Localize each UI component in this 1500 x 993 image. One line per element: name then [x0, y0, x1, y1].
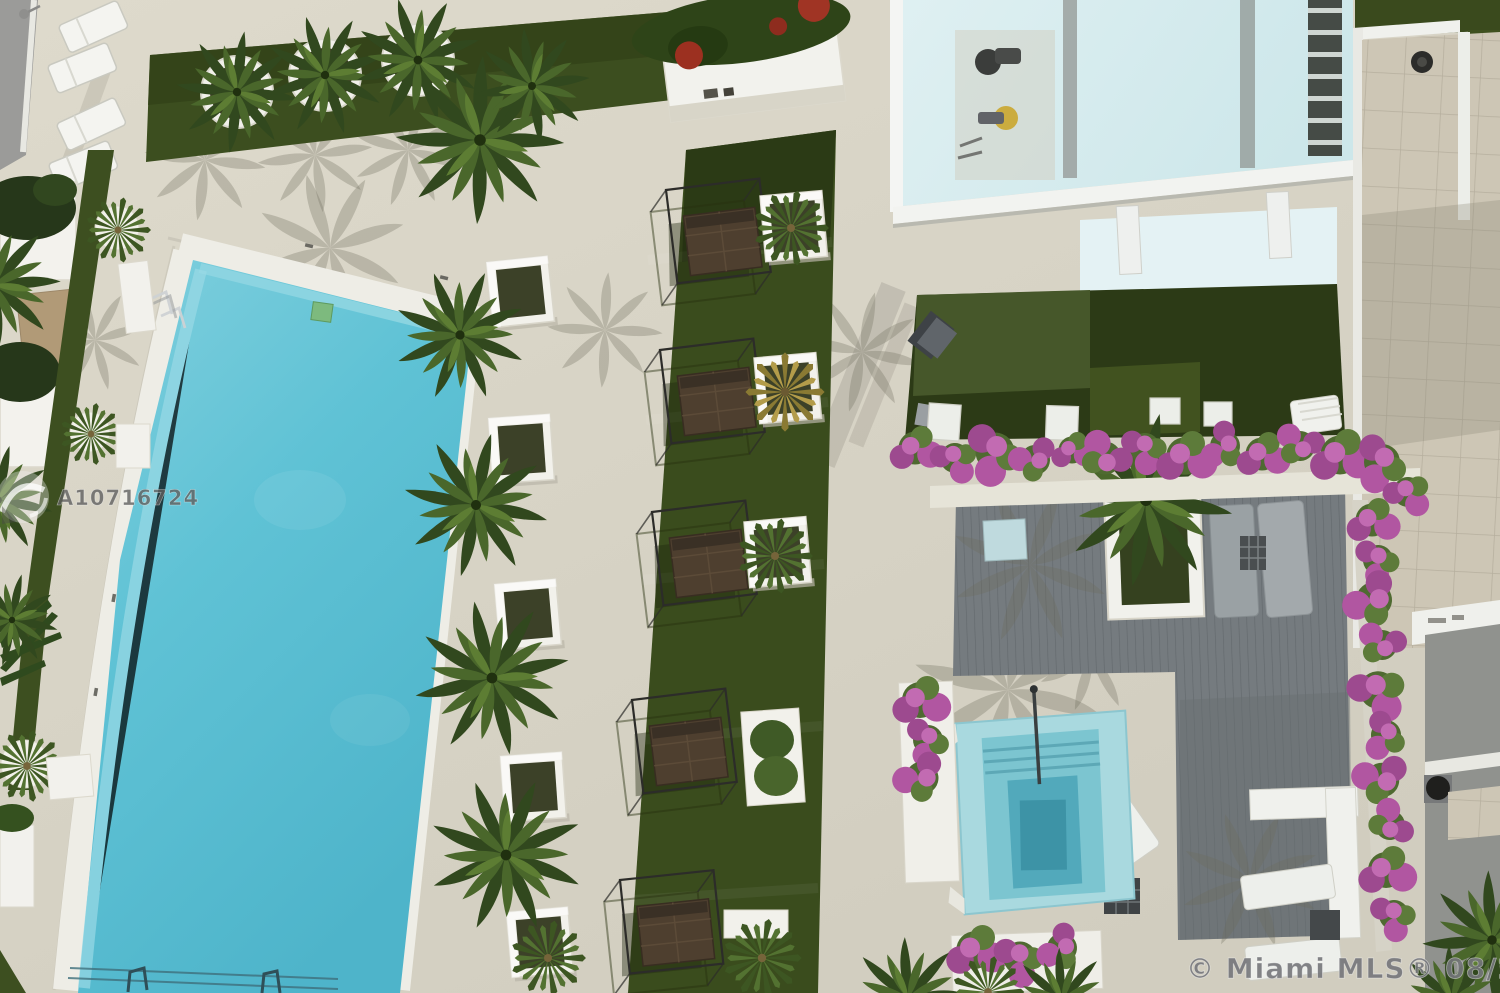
lamp-post	[19, 9, 29, 19]
copyright-watermark: © Miami MLS® 08/2019	[1186, 952, 1500, 985]
mls-aerial-photo: A10716724 © Miami MLS® 08/2019	[0, 0, 1500, 993]
listing-id-watermark: A10716724	[57, 486, 199, 510]
pool-float	[311, 302, 333, 323]
glazing-strip	[1308, 0, 1342, 156]
side-table	[1240, 536, 1266, 570]
sphere-ornament	[1426, 776, 1450, 800]
pavilion-lawn	[905, 284, 1345, 441]
planter-box	[500, 751, 570, 825]
side-table	[116, 424, 150, 468]
side-table	[46, 754, 93, 800]
sago-palm-golden	[745, 352, 824, 431]
grid-table	[1310, 910, 1340, 940]
teal-cabinet	[983, 519, 1027, 561]
bike-terrace	[955, 30, 1055, 180]
